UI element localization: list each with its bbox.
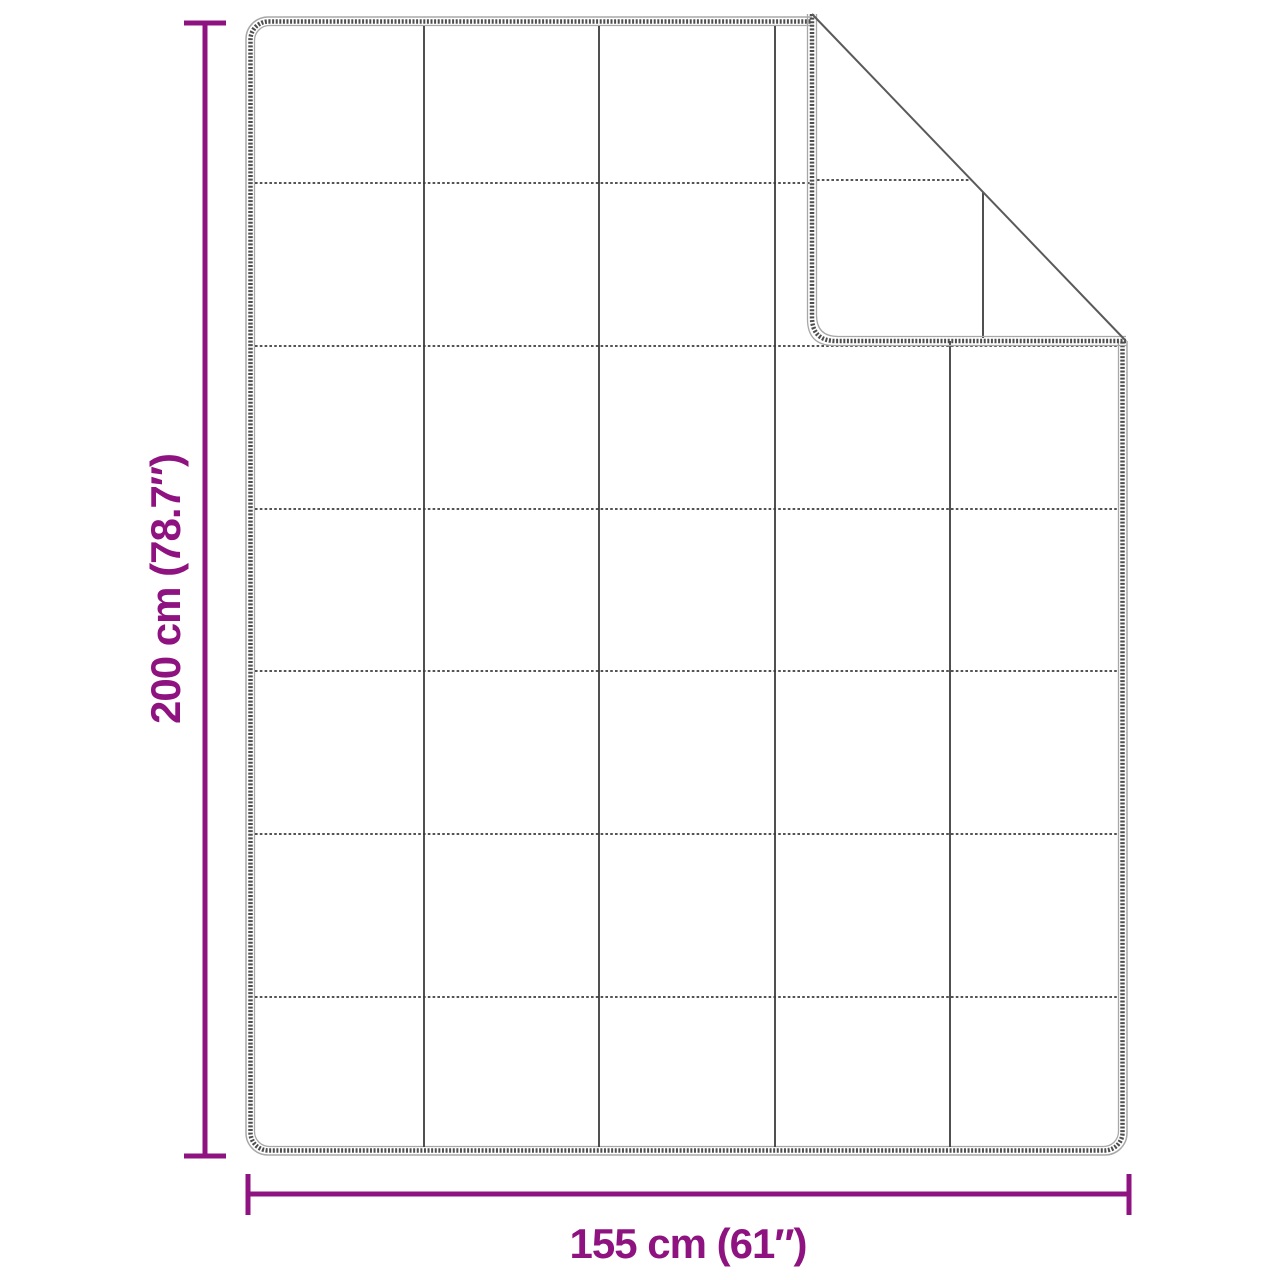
- width-dimension-label: 155 cm (61″): [570, 1220, 807, 1267]
- diagram-canvas: 200 cm (78.7″) 155 cm (61″): [0, 0, 1280, 1280]
- blanket: [246, 0, 1280, 1155]
- width-dimension: 155 cm (61″): [248, 1174, 1129, 1267]
- product-dimension-diagram: 200 cm (78.7″) 155 cm (61″): [0, 0, 1280, 1280]
- height-dimension-label: 200 cm (78.7″): [142, 454, 189, 724]
- height-dimension: 200 cm (78.7″): [142, 23, 226, 1156]
